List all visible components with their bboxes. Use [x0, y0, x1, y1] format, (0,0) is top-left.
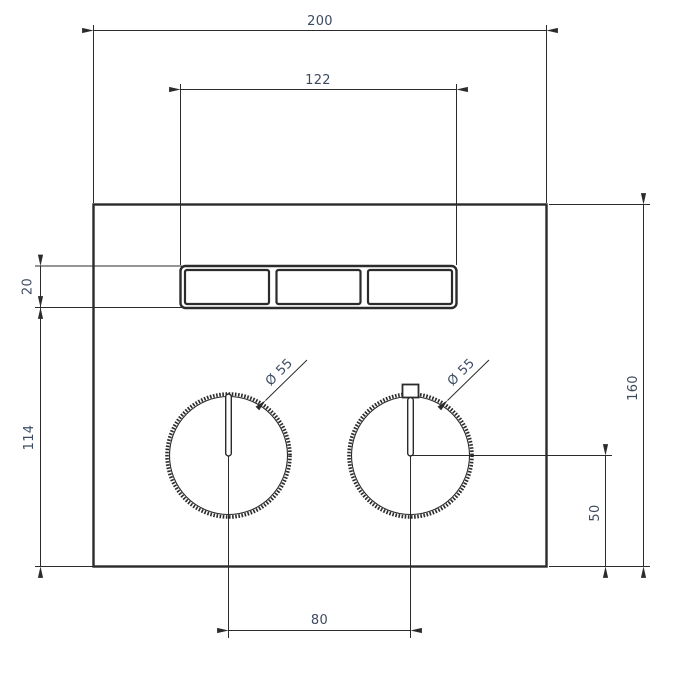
dim-text-right-knob-diameter: Ø 55	[445, 356, 478, 389]
dim-text-knob-spacing: 80	[311, 613, 328, 628]
knob-left-indicator-slot	[226, 394, 232, 456]
dim-text-button-row-height: 20	[21, 278, 36, 295]
dim-text-overall-width: 200	[307, 14, 333, 29]
dim-text-overall-height: 160	[626, 375, 641, 401]
knob-right-safety-tab	[403, 385, 419, 398]
button-panel-outline	[181, 266, 457, 308]
dim-text-knob-center-to-bottom: 50	[588, 504, 603, 521]
dim-text-left-knob-diameter: Ø 55	[263, 356, 296, 389]
knob-right-indicator-slot	[408, 398, 414, 457]
button-middle	[277, 270, 361, 304]
button-left	[185, 270, 269, 304]
drawing-page: 200 122 20 114 160 50 80 Ø 55 Ø 55	[0, 0, 700, 700]
technical-drawing-canvas: 200 122 20 114 160 50 80 Ø 55 Ø 55	[0, 0, 700, 700]
dim-text-button-group-width: 122	[305, 73, 331, 88]
button-right	[368, 270, 452, 304]
front-plate-outline	[94, 205, 547, 567]
button-panel	[181, 266, 457, 308]
dim-text-height-below-buttons: 114	[22, 425, 37, 451]
